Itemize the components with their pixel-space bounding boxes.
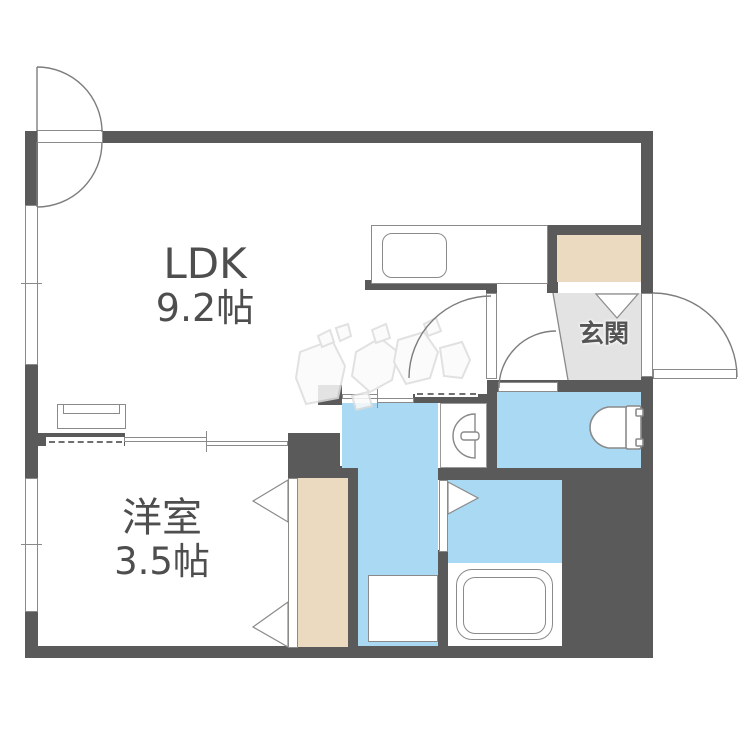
- ldk-label-name: LDK: [105, 240, 305, 287]
- bedroom-label-name: 洋室: [62, 496, 262, 541]
- washbasin: [453, 414, 479, 458]
- linework-layer: [0, 0, 750, 750]
- toilet: [590, 406, 643, 449]
- ldk-label-size: 9.2帖: [105, 287, 305, 330]
- entrance-label: 玄関: [565, 320, 643, 348]
- floorplan-canvas: LDK 9.2帖 洋室 3.5帖 玄関: [0, 0, 750, 750]
- bathroom-door-fold: [448, 482, 478, 514]
- balcony-door-arc-lower: [37, 142, 102, 207]
- bedroom-label-size: 3.5帖: [62, 541, 262, 582]
- balcony-door-arc-upper: [37, 67, 102, 132]
- watermark-logo: [296, 318, 470, 410]
- bedroom-label: 洋室 3.5帖: [62, 496, 262, 582]
- toilet-door-arc: [499, 331, 556, 388]
- ldk-label: LDK 9.2帖: [105, 240, 305, 330]
- entrance-door-arc: [653, 293, 737, 377]
- closet-door-fold-lower: [253, 602, 288, 647]
